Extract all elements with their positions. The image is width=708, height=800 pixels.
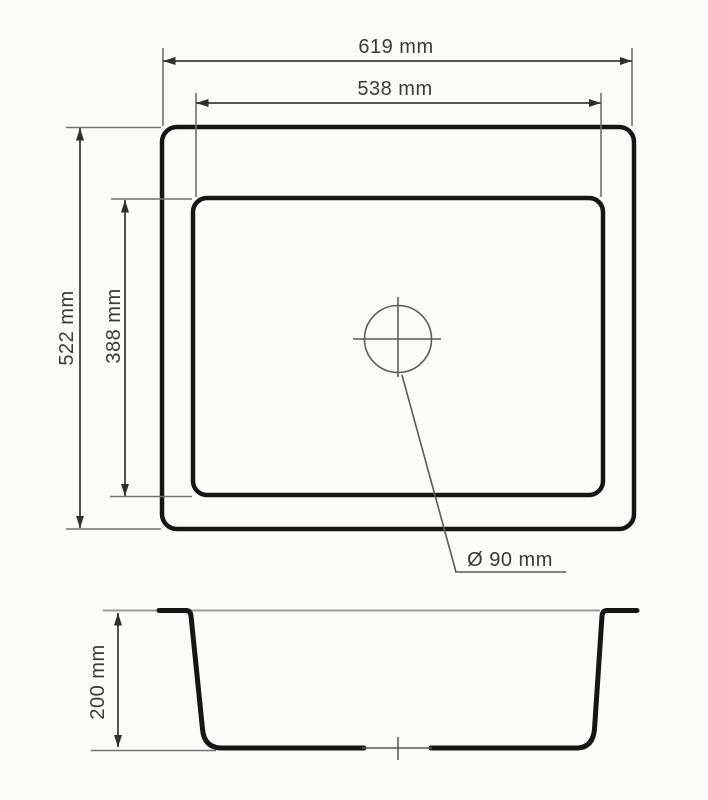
outer-depth-label: 522 mm [56,290,78,365]
section-left-wall [159,611,364,749]
top-view: Ø 90 mm [162,127,634,572]
drain-diameter-label: Ø 90 mm [467,549,553,571]
bowl-depth-label: 200 mm [87,644,109,719]
drain-leader-line [402,375,456,572]
drawing-svg: Ø 90 mm 619 mm 538 mm 522 mm [0,0,708,800]
outer-width-label: 619 mm [358,36,433,58]
dimension-inner-depth: 388 mm [103,199,192,497]
section-view [103,611,637,761]
inner-width-label: 538 mm [357,78,432,100]
section-right-wall [431,611,637,749]
inner-depth-label: 388 mm [103,288,125,363]
dimension-inner-width: 538 mm [196,78,601,197]
sink-technical-drawing: Ø 90 mm 619 mm 538 mm 522 mm [0,0,708,800]
